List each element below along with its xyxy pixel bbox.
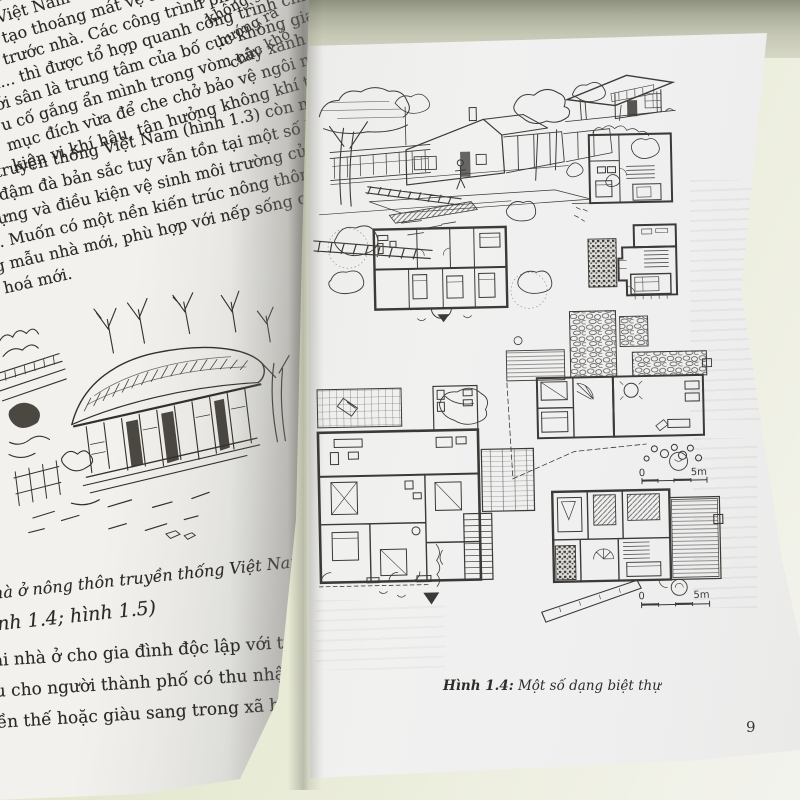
modern-house-sketch <box>565 74 676 121</box>
scale-max-label: 5m <box>693 590 709 601</box>
villa-perspective-drawing <box>311 83 622 261</box>
scale-zero-label: 0 <box>638 591 645 602</box>
figure-caption-label: Hình 1.4: <box>443 678 514 694</box>
scale-zero-label: 0 <box>639 468 646 479</box>
thatched-house-sketch <box>43 282 309 553</box>
floor-plan-upper-right <box>571 124 673 221</box>
scale-bar-2: 0 5m <box>638 590 709 608</box>
scale-bar-1: 0 5m <box>639 467 707 484</box>
figure-caption: Hình 1.4: Một số dạng biệt thự <box>443 678 703 694</box>
left-page: g nước...). không gian nửa kín hướng ra … <box>0 0 316 800</box>
floor-plan-middle-right <box>588 224 678 300</box>
figure-caption-text: Một số dạng biệt thự <box>514 678 661 694</box>
left-page-paragraph-3: ại nhà ở cho gia đình độc lập với tiện n… <box>0 626 327 739</box>
page-number: 9 <box>746 718 756 736</box>
rural-house-sketch <box>0 279 322 569</box>
right-page: 0 5m 0 5m Hình <box>295 28 800 778</box>
bottom-floor-plan <box>539 488 725 622</box>
stone-site-plan <box>505 309 713 479</box>
scale-max-label: 5m <box>691 467 707 478</box>
book-photo-scene: g nước...). không gian nửa kín hướng ra … <box>0 0 800 800</box>
villa-figure: 0 5m 0 5m <box>308 45 791 675</box>
villa-floor-plan-mid <box>327 200 552 325</box>
large-floor-plan <box>315 384 537 606</box>
